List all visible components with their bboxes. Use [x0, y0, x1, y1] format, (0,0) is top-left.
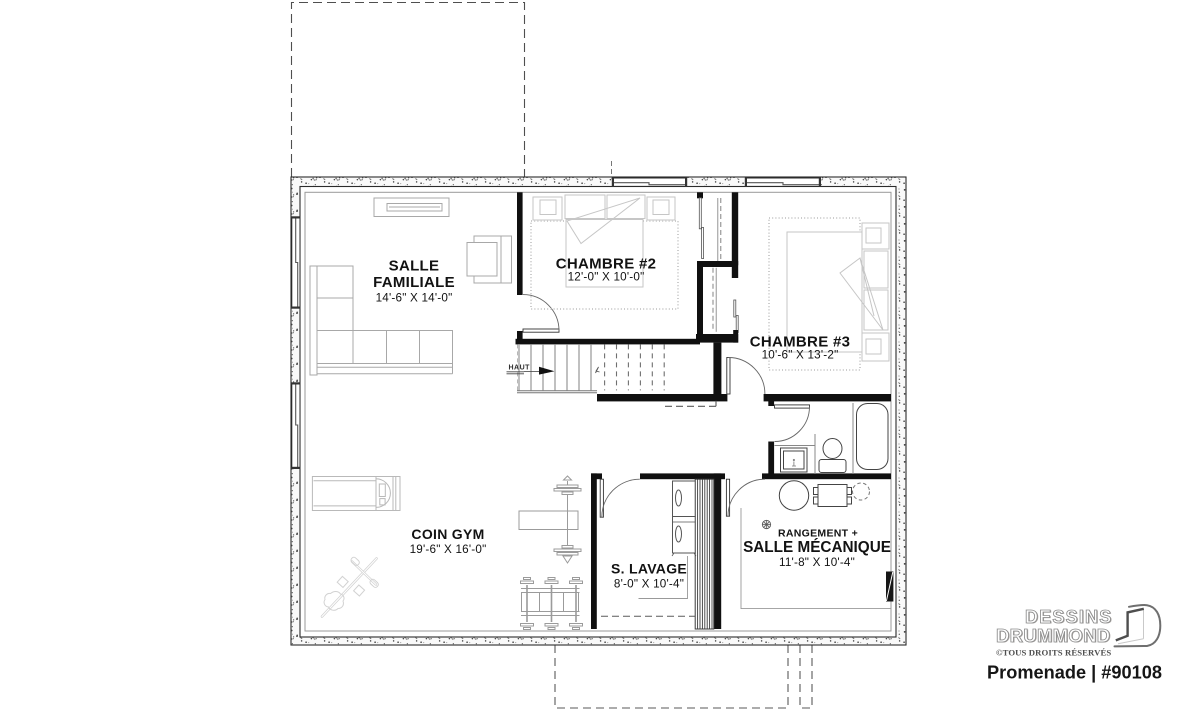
svg-text:DESSINS: DESSINS: [1025, 607, 1112, 627]
svg-text:SALLE: SALLE: [389, 258, 440, 275]
svg-text:DRUMMOND: DRUMMOND: [996, 625, 1110, 646]
svg-text:©TOUS DROITS RÉSERVÉS: ©TOUS DROITS RÉSERVÉS: [996, 648, 1111, 658]
svg-text:RANGEMENT +: RANGEMENT +: [778, 528, 858, 540]
svg-text:Promenade | #90108: Promenade | #90108: [987, 663, 1162, 683]
svg-text:14'-6" X 14'-0": 14'-6" X 14'-0": [376, 292, 453, 305]
svg-text:SALLE MÉCANIQUE: SALLE MÉCANIQUE: [743, 539, 891, 556]
svg-text:HAUT: HAUT: [509, 365, 531, 372]
svg-text:8'-0" X 10'-4": 8'-0" X 10'-4": [614, 578, 684, 591]
svg-text:11'-8" X 10'-4": 11'-8" X 10'-4": [779, 556, 855, 569]
svg-text:S. LAVAGE: S. LAVAGE: [611, 561, 687, 577]
svg-text:10'-6" X 13'-2": 10'-6" X 13'-2": [762, 349, 839, 362]
svg-text:19'-6" X 16'-0": 19'-6" X 16'-0": [410, 543, 487, 556]
svg-text:12'-0" X 10'-0": 12'-0" X 10'-0": [568, 271, 645, 284]
svg-text:FAMILIALE: FAMILIALE: [373, 274, 455, 291]
svg-text:COIN GYM: COIN GYM: [411, 526, 484, 542]
